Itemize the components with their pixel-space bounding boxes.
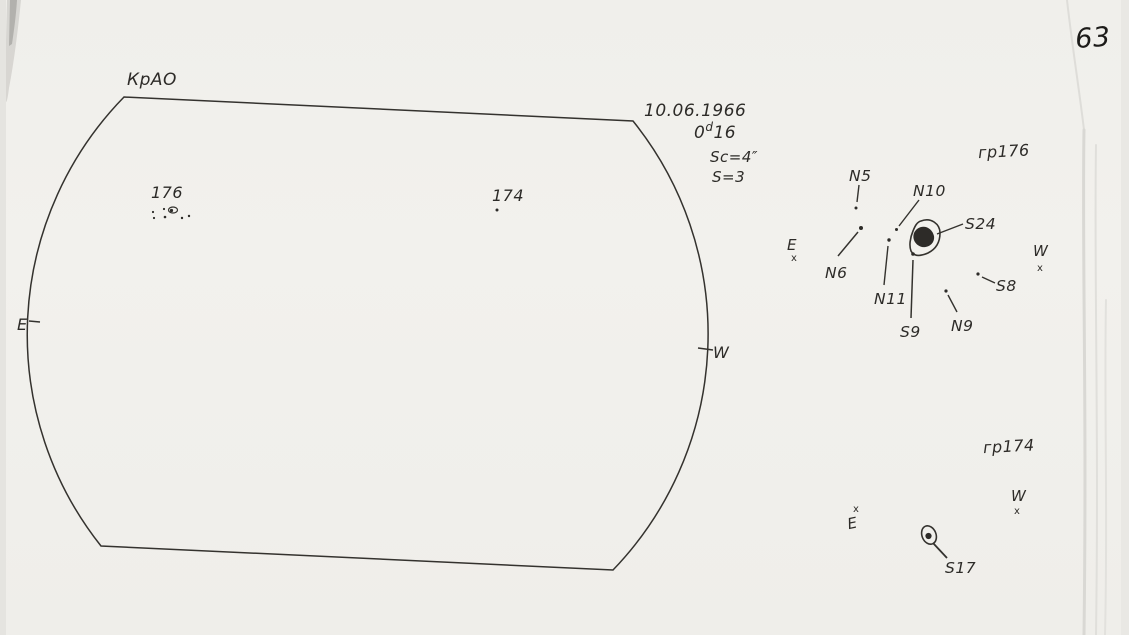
spot-pointer-s17 xyxy=(933,543,947,558)
observation-date: 10.06.1966 xyxy=(644,101,746,121)
sunspot-s8 xyxy=(976,272,979,275)
sunspot-n11 xyxy=(887,238,890,241)
disk-west-tick xyxy=(698,348,713,350)
spot-label-s24: S24 xyxy=(965,215,996,233)
spot-pointer-n9 xyxy=(948,295,957,312)
disk-east-tick xyxy=(29,321,40,322)
disk-west-label: W xyxy=(713,343,730,362)
time-superscript: d xyxy=(705,120,713,134)
observation-time: 0d16 xyxy=(694,120,736,143)
sunspot-n6 xyxy=(859,226,863,230)
detail-174-title: гр174 xyxy=(983,435,1036,457)
page-number: 63 xyxy=(1074,22,1111,55)
disk-group-174: 174 xyxy=(492,186,524,212)
spot-pointer-n11 xyxy=(884,246,888,285)
sunspot-s24-umbra xyxy=(913,227,934,247)
observation-header: 10.06.1966 0d16 Sc=4″ S=3 xyxy=(644,101,758,186)
time-rest: 16 xyxy=(713,123,736,143)
detail-176-west-cross-marker: x xyxy=(1037,263,1043,274)
sunspot-s17-umbra xyxy=(925,533,931,539)
observation-seeing: S=3 xyxy=(712,168,745,186)
spot-label-s9: S9 xyxy=(900,323,921,341)
paper-crease xyxy=(1084,130,1085,635)
observatory-name: КрАО xyxy=(127,70,177,90)
scan-right-edge-strip xyxy=(1121,0,1129,635)
sunspot-n5 xyxy=(855,207,858,210)
detail-176-west-label: W xyxy=(1033,242,1049,260)
solar-disk-outline xyxy=(27,97,708,570)
spot-label-n11: N11 xyxy=(874,290,907,308)
scan-left-edge-strip xyxy=(0,0,6,635)
sunspot-dot xyxy=(188,215,190,217)
spot-label-n9: N9 xyxy=(951,317,973,335)
disk-group-176: 176 xyxy=(151,183,190,219)
spot-pointer-n5 xyxy=(857,185,859,202)
sunspot-dot xyxy=(496,209,499,212)
spot-label-s8: S8 xyxy=(996,277,1017,295)
spot-label-n6: N6 xyxy=(825,264,847,282)
spot-pointer-n6 xyxy=(838,232,858,256)
disk-group-174-label: 174 xyxy=(492,186,524,205)
sunspot-n10 xyxy=(895,228,898,231)
scanned-observation-page: 63 КрАО E W 176 174 10.06.1966 0d16 xyxy=(0,0,1129,635)
detail-174-west-label: W xyxy=(1011,487,1027,505)
detail-176-east-cross-marker: x xyxy=(791,253,797,264)
spot-pointer-s8 xyxy=(982,277,995,283)
sunspot-umbra-small xyxy=(170,209,173,212)
sunspot-dot xyxy=(152,211,154,213)
observation-drawing: 63 КрАО E W 176 174 10.06.1966 0d16 xyxy=(0,0,1129,635)
spot-label-n10: N10 xyxy=(913,182,946,200)
sunspot-dot xyxy=(163,208,165,210)
sunspot-dot xyxy=(164,216,167,219)
spot-label-s17: S17 xyxy=(945,559,976,577)
detail-group-174: гр174 W x x E S17 xyxy=(846,435,1035,577)
spot-pointer-n10 xyxy=(899,200,919,226)
detail-176-east-label: E xyxy=(787,236,797,254)
paper-crease xyxy=(1067,0,1084,130)
observation-scale: Sc=4″ xyxy=(710,148,758,166)
sunspot-dot xyxy=(181,217,183,219)
disk-group-176-label: 176 xyxy=(151,183,183,202)
spot-label-n5: N5 xyxy=(849,167,871,185)
sunspot-n9 xyxy=(944,289,947,292)
paper-crease xyxy=(1105,300,1106,635)
time-base: 0 xyxy=(694,123,705,143)
disk-east-label: E xyxy=(17,315,28,334)
sunspot-s9-dot xyxy=(911,252,915,256)
detail-174-east-label: E xyxy=(846,514,860,534)
detail-174-west-cross-marker: x xyxy=(1014,506,1020,517)
spot-pointer-s24 xyxy=(937,224,963,234)
detail-176-title: гр176 xyxy=(978,140,1031,162)
detail-group-176: гр176 E x W x N5 N10 N6 N11 S24 S9 N9 xyxy=(787,140,1049,341)
sunspot-dot xyxy=(153,217,155,219)
spot-pointer-s9 xyxy=(911,260,913,318)
paper-crease xyxy=(1096,145,1097,635)
solar-disk: E W 176 174 xyxy=(17,97,730,570)
